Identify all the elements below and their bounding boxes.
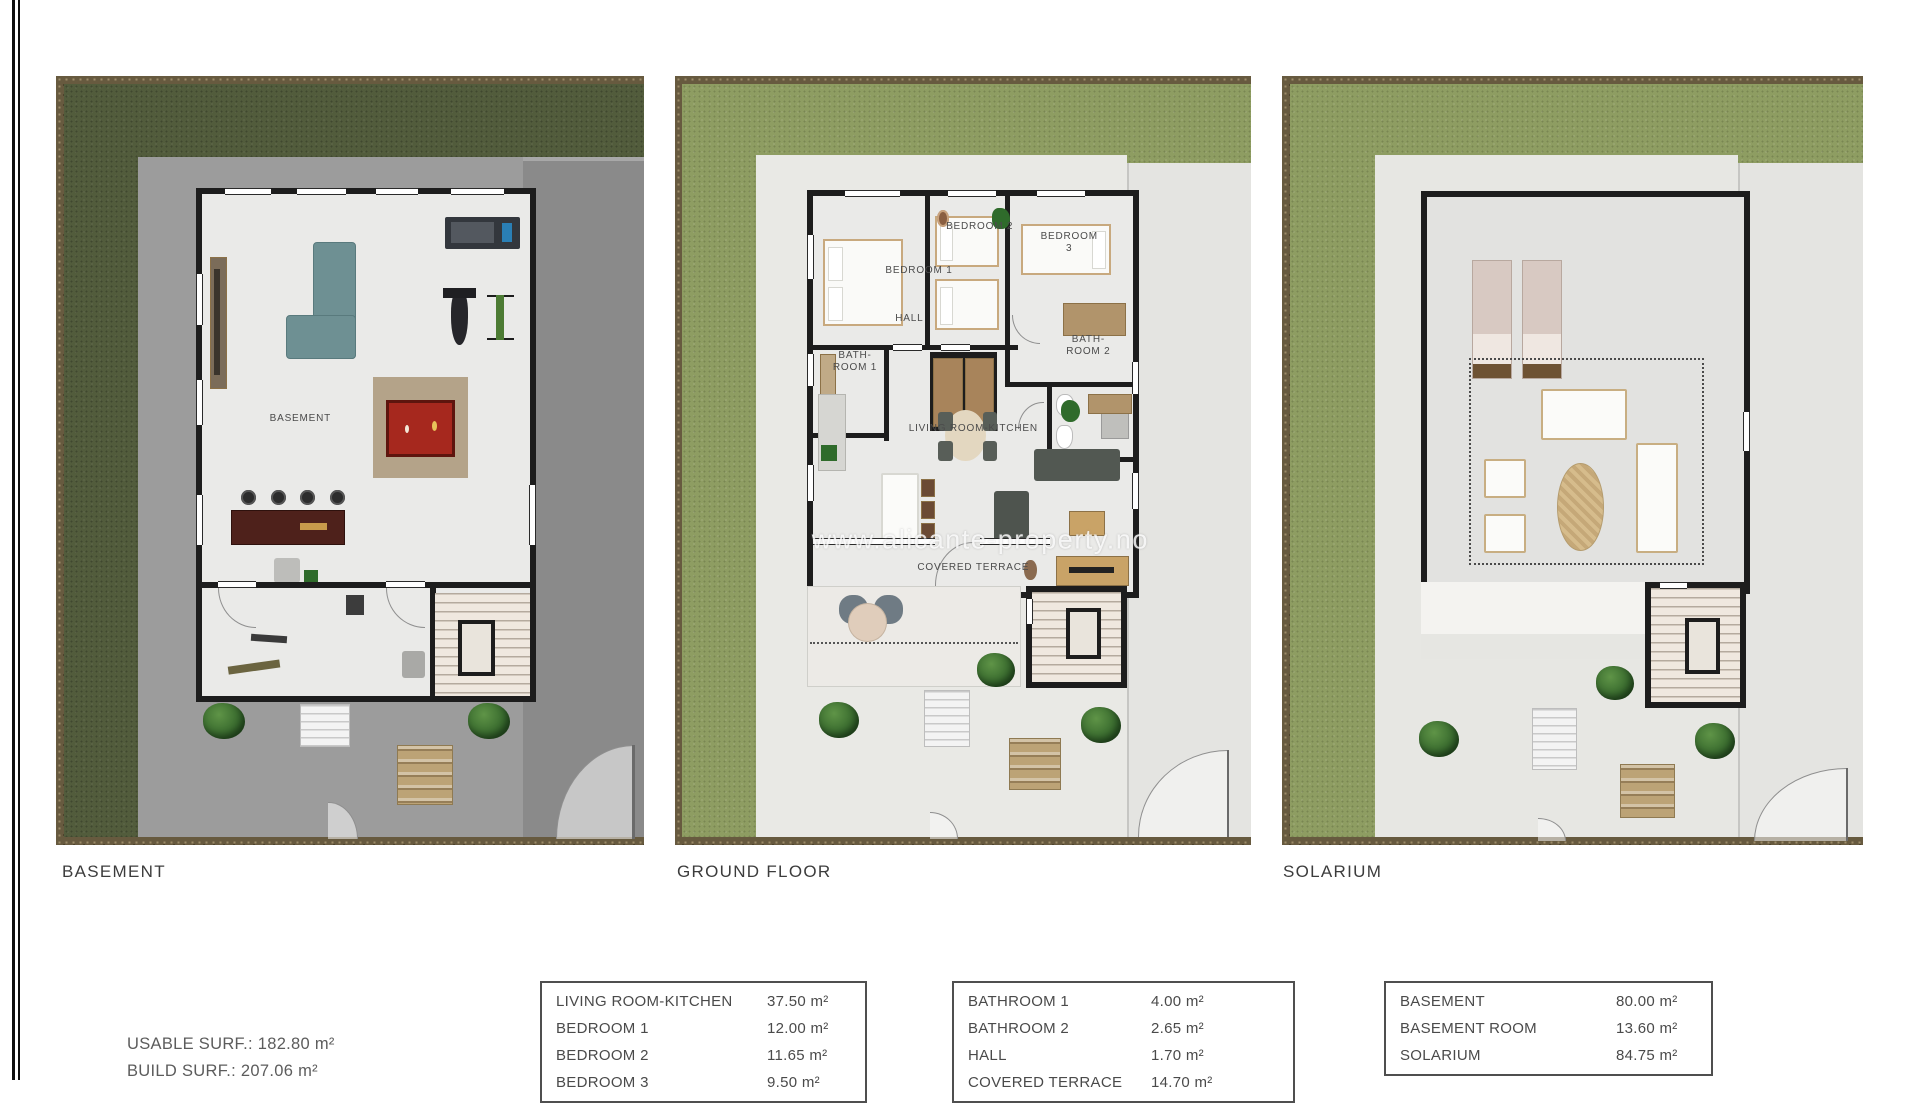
stair-room [1645, 582, 1746, 708]
table-row: BEDROOM 39.50 m² [542, 1069, 865, 1096]
room-area: 4.00 m² [1151, 993, 1293, 1010]
table-row: HALL1.70 m² [954, 1042, 1293, 1069]
plant [821, 445, 837, 461]
window [845, 190, 899, 197]
room-area: 11.65 m² [767, 1047, 865, 1064]
floorplan-basement: BASEMENT [56, 76, 644, 845]
room-area: 9.50 m² [767, 1074, 865, 1091]
room-name: BEDROOM 2 [542, 1047, 767, 1064]
table-row: BATHROOM 22.65 m² [954, 1015, 1293, 1042]
bush [1596, 666, 1634, 700]
bathroom1-wall [884, 345, 889, 440]
room-label-bedroom3: BEDROOM 3 [1037, 231, 1101, 255]
window [1743, 412, 1750, 451]
room-name: BASEMENT [1386, 993, 1616, 1010]
area-table-rooms: LIVING ROOM-KITCHEN37.50 m²BEDROOM 112.0… [540, 981, 867, 1103]
gate-leaf [632, 745, 635, 839]
room-area: 1.70 m² [1151, 1047, 1293, 1064]
corner-sofa-foot [286, 315, 357, 360]
area-table-basement: BASEMENT80.00 m²BASEMENT ROOM13.60 m²SOL… [1384, 981, 1713, 1076]
surface-summary: USABLE SURF.: 182.80 m² BUILD SURF.: 207… [127, 1031, 335, 1085]
stool [921, 501, 936, 519]
bathroom2-wall [1047, 382, 1052, 457]
build-surface: BUILD SURF.: 207.06 m² [127, 1058, 335, 1085]
bar-stool [271, 490, 286, 505]
exercise-bike-handlebar [443, 288, 476, 298]
window [1132, 473, 1139, 509]
table-row: COVERED TERRACE14.70 m² [954, 1069, 1293, 1096]
outdoor-armchair [1484, 459, 1525, 498]
stair-door [1660, 582, 1687, 589]
usable-surface: USABLE SURF.: 182.80 m² [127, 1031, 335, 1058]
floorplan-ground-floor: BEDROOM 1 BEDROOM 2 BEDROOM 3 HALL BATH-… [675, 76, 1251, 845]
pillow [940, 287, 953, 325]
room-name: BEDROOM 3 [542, 1074, 767, 1091]
room-label-hall: HALL [895, 313, 923, 325]
stair-landing [1066, 608, 1101, 659]
table-row: BEDROOM 211.65 m² [542, 1042, 865, 1069]
room-area: 12.00 m² [767, 1020, 865, 1037]
garden-bench [397, 745, 453, 805]
room-label-bedroom1: BEDROOM 1 [885, 265, 952, 277]
bar-counter-detail [300, 523, 326, 530]
solarium-roof [1421, 191, 1750, 594]
bar-counter [231, 510, 345, 545]
door-swing-arc [1012, 315, 1041, 345]
stair-landing [458, 620, 496, 676]
bush [977, 653, 1015, 687]
door-opening [941, 344, 970, 351]
caption-ground-floor: GROUND FLOOR [677, 862, 831, 882]
caption-solarium: SOLARIUM [1283, 862, 1382, 882]
driveway [523, 157, 644, 837]
plant [1061, 400, 1080, 422]
door-opening [218, 581, 256, 588]
area-table-bathrooms: BATHROOM 14.00 m²BATHROOM 22.65 m²HALL1.… [952, 981, 1295, 1103]
door-swing-arc [218, 588, 256, 628]
bar-stool [241, 490, 256, 505]
window [948, 190, 996, 197]
page-edge-line-inner [18, 0, 20, 1080]
terrace-dotted-line [810, 642, 1017, 644]
door-swing-arc [386, 588, 425, 628]
toilet [1056, 425, 1072, 449]
driveway [1127, 163, 1251, 837]
bush [819, 702, 859, 738]
terrace-strip [1421, 582, 1645, 634]
window [1132, 362, 1139, 394]
pool-table [386, 400, 455, 458]
bar-stool [300, 490, 315, 505]
floor-mat [274, 558, 300, 583]
room-name: COVERED TERRACE [954, 1074, 1151, 1091]
bicycle [251, 634, 287, 643]
bush [1695, 723, 1735, 759]
room-name: HALL [954, 1047, 1151, 1064]
caption-basement: BASEMENT [62, 862, 166, 882]
table-row: BASEMENT80.00 m² [1386, 988, 1711, 1015]
table-row: SOLARIUM84.75 m² [1386, 1042, 1711, 1069]
stair-landing [1685, 618, 1720, 674]
window [297, 188, 346, 195]
room-label-basement: BASEMENT [270, 413, 331, 425]
treadmill-console [502, 223, 512, 242]
bush [468, 703, 510, 739]
stair-door [1026, 599, 1033, 624]
terrace-table [848, 603, 887, 642]
table-row: BASEMENT ROOM13.60 m² [1386, 1015, 1711, 1042]
door-opening [386, 581, 425, 588]
pillow [828, 287, 843, 321]
bicycle [228, 659, 281, 674]
watermark: www.alicante-property.no [812, 525, 1149, 556]
room-label-living-room-kitchen: LIVING ROOM-KITCHEN [909, 423, 1038, 435]
garden-bench [1620, 764, 1675, 818]
driveway [1738, 163, 1863, 837]
outdoor-sofa-side [1636, 443, 1677, 552]
basement-house: BASEMENT [196, 188, 536, 701]
room-name: BASEMENT ROOM [1386, 1020, 1616, 1037]
room-name: BATHROOM 2 [954, 1020, 1151, 1037]
room-area: 14.70 m² [1151, 1074, 1293, 1091]
room-area: 80.00 m² [1616, 993, 1711, 1010]
terrace-sideboard-line [1069, 567, 1114, 573]
room-label-bedroom2: BEDROOM 2 [946, 221, 1013, 233]
pool-balls [432, 421, 437, 431]
storage-box [402, 651, 425, 679]
window [807, 354, 814, 386]
garden-steps [1532, 708, 1577, 770]
round-table [1557, 463, 1603, 551]
window [196, 274, 203, 324]
bush [1419, 721, 1459, 757]
room-area: 37.50 m² [767, 993, 865, 1010]
desk [1063, 303, 1126, 337]
table-row: BATHROOM 14.00 m² [954, 988, 1293, 1015]
gate-leaf [1846, 768, 1849, 841]
exercise-bike [451, 290, 467, 345]
bar-stool [330, 490, 345, 505]
room-area: 13.60 m² [1616, 1020, 1711, 1037]
bedroom3-wall [1005, 382, 1133, 387]
window [196, 495, 203, 545]
room-area: 84.75 m² [1616, 1047, 1711, 1064]
window [807, 465, 814, 501]
window [1037, 190, 1085, 197]
outdoor-sofa [1541, 389, 1626, 440]
floorplan-solarium [1282, 76, 1863, 845]
outdoor-armchair [1484, 514, 1525, 553]
window [807, 235, 814, 279]
room-name: SOLARIUM [1386, 1047, 1616, 1064]
room-label-covered-terrace: COVERED TERRACE [917, 562, 1029, 574]
pillow [828, 247, 843, 281]
door-opening [893, 344, 922, 351]
table-row: BEDROOM 112.00 m² [542, 1015, 865, 1042]
garden-steps [924, 690, 970, 748]
room-name: LIVING ROOM-KITCHEN [542, 993, 767, 1010]
table-row: LIVING ROOM-KITCHEN37.50 m² [542, 988, 865, 1015]
stool [921, 479, 936, 497]
window [451, 188, 503, 195]
dining-chair [983, 441, 997, 461]
door-opening [529, 485, 536, 545]
dining-chair [938, 441, 952, 461]
sideboard [1088, 394, 1132, 414]
garden-steps [300, 704, 350, 746]
page-edge-line-outer [12, 0, 15, 1080]
garden-bench [1009, 738, 1061, 790]
room-name: BEDROOM 1 [542, 1020, 767, 1037]
room-label-bathroom2: BATH- ROOM 2 [1066, 334, 1110, 358]
desk-chair [346, 595, 364, 615]
window [225, 188, 271, 195]
room-label-bathroom1: BATH- ROOM 1 [833, 350, 877, 374]
room-area: 2.65 m² [1151, 1020, 1293, 1037]
window [376, 188, 419, 195]
media-console-inner [214, 269, 221, 374]
weight-bench-pad [496, 295, 504, 340]
terrace-strip-lower [1421, 634, 1645, 659]
room-name: BATHROOM 1 [954, 993, 1151, 1010]
stair-room [1026, 586, 1127, 688]
bush [1081, 707, 1121, 743]
bush [203, 703, 245, 739]
treadmill-belt [451, 222, 494, 243]
window [196, 380, 203, 425]
gate-leaf [1227, 750, 1230, 837]
sofa [1034, 449, 1120, 481]
